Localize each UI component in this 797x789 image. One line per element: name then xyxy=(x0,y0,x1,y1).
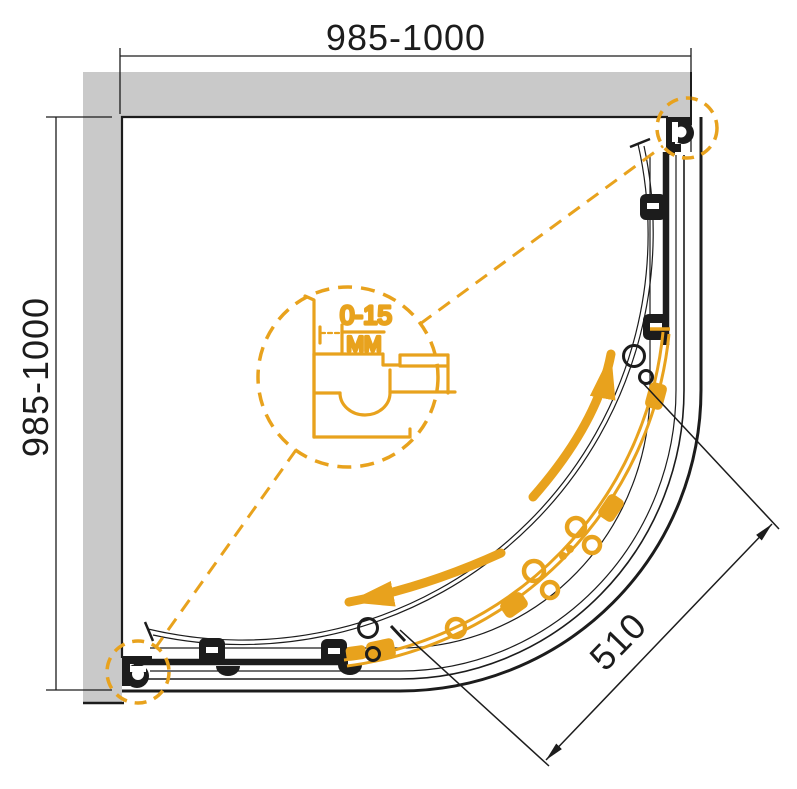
track-inner-line xyxy=(150,155,650,648)
wall-top xyxy=(83,72,691,117)
inner-wall-corner-line xyxy=(122,117,668,658)
dimension-top-label: 985-1000 xyxy=(326,17,486,58)
tray-inner-rim xyxy=(137,155,684,679)
track-outer-line xyxy=(150,155,676,671)
shower-enclosure-plan-drawing: 0-15 MM 985-1000 985-1000 510 xyxy=(0,0,797,789)
detail-adjustment-label: 0-15 xyxy=(340,300,392,330)
door-glass-bottom-cap xyxy=(145,622,153,641)
detail-unit-label: MM xyxy=(347,333,382,356)
door-glass-line-2 xyxy=(153,146,653,645)
leader-line-top-right xyxy=(420,146,663,324)
dimension-diagonal-extension-b xyxy=(400,630,549,766)
detail-drawing: 0-15 MM xyxy=(305,296,455,437)
dimension-diagonal-extension-a xyxy=(640,380,779,529)
panel-clamp-brackets xyxy=(199,194,669,676)
slide-arrow-up-icon xyxy=(533,354,611,497)
dimension-left-label: 985-1000 xyxy=(15,297,56,457)
technical-drawing-page: 0-15 MM 985-1000 985-1000 510 xyxy=(0,0,797,789)
slide-arrow-left-icon xyxy=(349,553,501,602)
wall-profile-top-right xyxy=(666,117,694,155)
guide-roller-left xyxy=(216,666,240,676)
dimension-diagonal-label: 510 xyxy=(581,604,654,678)
dimension-diagonal-line xyxy=(546,524,772,760)
wall-left xyxy=(83,72,122,704)
leader-line-bottom-left xyxy=(156,450,296,647)
tray-outer-edge xyxy=(122,117,701,691)
door-glass-top-cap xyxy=(630,139,650,147)
enclosure-frame xyxy=(122,117,701,691)
wall-profile-bottom-left xyxy=(122,656,152,688)
